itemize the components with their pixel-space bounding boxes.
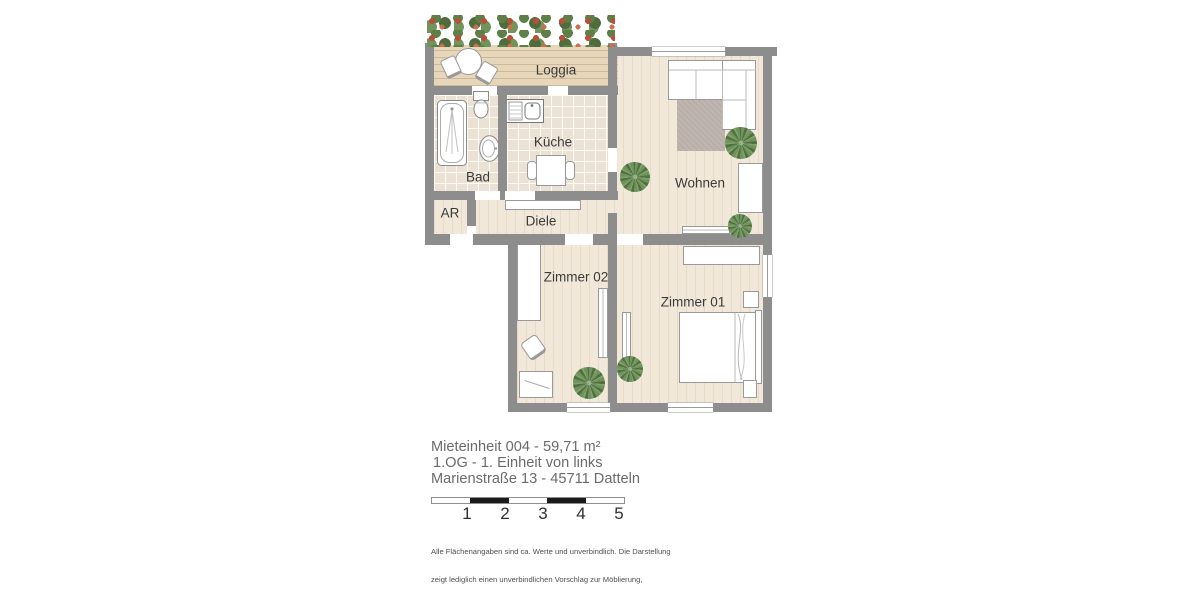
disclaimer-text: Alle Flächenangaben sind ca. Werte und u… — [431, 529, 671, 600]
door-zimmer02 — [565, 234, 593, 245]
room-label-kueche: Küche — [534, 135, 572, 150]
kitchen-chair-right — [565, 161, 575, 180]
room-label-zimmer01: Zimmer 01 — [661, 295, 726, 310]
door-entrance — [450, 234, 473, 245]
window-wohnen-top — [652, 47, 725, 56]
wall-outer-bottom — [508, 403, 772, 412]
door-kueche-wohnen — [608, 148, 617, 172]
floorplan-page: Loggia Bad Küche AR Diele Wohnen Zimmer … — [0, 0, 1200, 600]
hallway-cabinet — [505, 200, 581, 210]
zimmer01-bed — [679, 312, 756, 383]
window-zimmer02-bottom — [567, 403, 610, 412]
wall-loggia-bottom — [425, 86, 618, 95]
scale-tick-labels: 1 2 3 4 5 — [431, 504, 623, 524]
window-zimmer01-right — [763, 255, 772, 297]
living-room-sideboard — [738, 163, 763, 213]
kitchen-table — [536, 155, 566, 186]
disclaimer-line-1: Alle Flächenangaben sind ca. Werte und u… — [431, 547, 671, 556]
zimmer01-nightstand-bottom — [743, 380, 757, 398]
room-label-diele: Diele — [526, 214, 557, 229]
kitchen-sink-counter — [506, 99, 544, 123]
unit-title: Mieteinheit 004 - 59,71 m² — [431, 439, 640, 455]
window-zimmer01-bottom — [668, 403, 713, 412]
room-label-bad: Bad — [466, 170, 490, 185]
scale-bar-black-segment-2 — [547, 498, 585, 503]
corner-sofa — [668, 60, 757, 131]
zimmer01-radiator — [622, 312, 631, 359]
wall-ar-divider — [467, 200, 476, 226]
wall-outer-right — [763, 47, 772, 412]
scale-tick-5: 5 — [614, 504, 623, 524]
living-room-lowboard — [682, 226, 730, 234]
scale-tick-2: 2 — [500, 504, 509, 524]
wall-zimmer02-left — [508, 234, 517, 412]
bathtub — [437, 100, 467, 166]
disclaimer-line-2: zeigt lediglich einen unverbindlichen Vo… — [431, 575, 671, 584]
room-label-zimmer02: Zimmer 02 — [544, 270, 609, 285]
door-kueche-balcony — [548, 86, 568, 95]
zimmer02-wardrobe — [517, 243, 541, 321]
wall-zimmer-divider — [608, 213, 617, 412]
room-label-wohnen: Wohnen — [675, 176, 725, 191]
kitchen-chair-left — [527, 161, 537, 180]
floor-info: 1.OG - 1. Einheit von links — [431, 455, 640, 471]
door-kueche — [505, 191, 535, 200]
door-ar — [467, 226, 476, 234]
plant-zimmer01 — [617, 356, 643, 382]
door-bad — [475, 191, 500, 200]
zimmer02-sideboard — [598, 288, 608, 358]
scale-bar-black-segment-1 — [470, 498, 508, 503]
plant-wohnen-left — [620, 162, 650, 192]
room-label-loggia: Loggia — [536, 63, 577, 78]
scale-tick-1: 1 — [462, 504, 471, 524]
loggia-flower-bed — [427, 15, 615, 47]
wall-bad-kueche-divider — [498, 95, 507, 191]
bathroom-sink — [479, 135, 500, 162]
plant-wohnen-top-right — [725, 127, 757, 159]
scale-bar — [431, 497, 625, 504]
plant-wohnen-bottom — [728, 214, 752, 238]
scale-tick-4: 4 — [576, 504, 585, 524]
zimmer02-desk — [519, 371, 553, 398]
scale-tick-3: 3 — [538, 504, 547, 524]
wall-outer-left — [425, 43, 434, 245]
plant-zimmer02 — [573, 367, 605, 399]
address: Marienstraße 13 - 45711 Datteln — [431, 471, 640, 487]
floorplan: Loggia Bad Küche AR Diele Wohnen Zimmer … — [425, 15, 777, 415]
wall-corridor-bottom — [425, 234, 772, 245]
door-zimmer01 — [617, 234, 643, 245]
zimmer01-headboard — [755, 310, 762, 384]
caption-block: Mieteinheit 004 - 59,71 m² 1.OG - 1. Ein… — [431, 439, 640, 487]
zimmer01-nightstand-top — [743, 291, 759, 308]
room-label-ar: AR — [441, 206, 460, 221]
zimmer01-wardrobe — [683, 246, 760, 265]
toilet — [472, 91, 490, 119]
